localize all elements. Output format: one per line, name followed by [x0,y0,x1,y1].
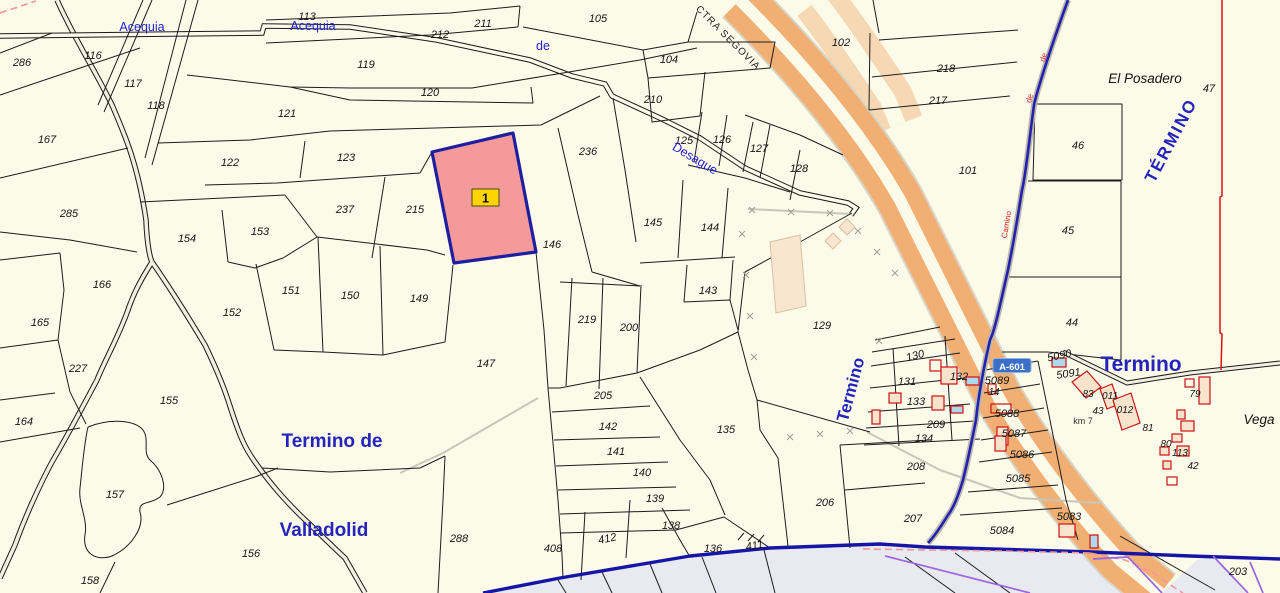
parcel-number-label: 5085 [1006,473,1031,485]
parcel-number-label: 146 [543,239,562,251]
municipality-label: Valladolid [280,520,369,541]
parcel-number-label: 127 [750,143,769,155]
parcel-number-label: 129 [813,320,831,332]
parcel-number-label: 46 [1072,140,1085,152]
parcel-number-label: 227 [68,363,88,375]
parcel-number-label: 236 [578,146,598,158]
parcel-number-label: 131 [898,376,916,388]
parcel-number-label: 208 [906,461,926,473]
parcel-number-label: 5086 [1010,449,1035,461]
road-shield-label: A-601 [999,362,1026,373]
parcel-number-label: 5088 [995,408,1020,420]
building [951,406,963,413]
parcel-number-label: 79 [1189,389,1201,400]
building [1059,524,1075,537]
building [1163,461,1171,469]
building [1090,535,1098,548]
municipality-label: Termino [1100,353,1181,376]
parcel-number-label: 102 [832,37,850,49]
parcel-number-label: 215 [405,204,425,216]
parcel-number-label: 126 [713,134,732,146]
building [932,396,944,410]
parcel-number-label: 212 [430,29,449,41]
parcel-number-label: 81 [1142,423,1153,434]
place-name-label: Vega [1243,412,1275,427]
parcel-number-label: 150 [341,290,360,302]
parcel-number-label: 219 [577,314,596,326]
building [1172,434,1182,442]
parcel-number-label: 166 [93,279,112,291]
building [889,393,901,403]
parcel-number-label: 123 [337,152,356,164]
parcel-number-label: 152 [223,307,241,319]
parcel-number-label: 157 [106,489,125,501]
hydro-label: Acequia [290,19,335,33]
parcel-number-label: 147 [477,358,496,370]
building [872,410,880,424]
parcel-number-label: 5084 [990,525,1014,537]
parcel-number-label: 132 [950,371,968,383]
parcel-number-label: 45 [1062,225,1075,237]
building [1177,410,1185,419]
parcel-number-label: 143 [699,285,718,297]
parcel-number-label: 203 [1228,566,1248,578]
building [1181,421,1194,431]
parcel-number-label: 205 [593,390,613,402]
parcel-number-label: 118 [147,100,165,112]
parcel-number-label: 167 [38,134,57,146]
parcel-number-label: 206 [815,497,835,509]
parcel-number-label: 105 [589,13,608,25]
parcel-number-label: 128 [790,163,809,175]
parcel-number-label: 288 [449,533,469,545]
parcel-number-label: 207 [903,513,923,525]
parcel-number-label: 154 [178,233,196,245]
parcel-number-label: 104 [660,54,678,66]
parcel-number-label: 133 [907,396,926,408]
cadastral-map[interactable]: 2141A-6012861161171181671132112121051042… [0,0,1280,593]
parcel-number-label: 116 [84,50,102,62]
parcel-number-label: 144 [701,222,719,234]
parcel-number-label: 119 [357,59,375,71]
parcel-number-label: 149 [410,293,428,305]
parcel-number-label: 156 [242,548,261,560]
parcel-number-label: 121 [278,108,296,120]
parcel-number-label: 140 [633,467,652,479]
parcel-number-label: 14 [988,387,1000,398]
parcel-number-label: 113 [1172,448,1188,459]
parcel-number-label: 42 [1187,461,1199,472]
parcel-number-label: 120 [421,87,440,99]
parcel-number-label: 5089 [985,375,1009,387]
parcel-number-label: 83 [1082,389,1094,400]
parcel-number-label: 80 [1160,439,1172,450]
parcel-number-label: 164 [15,416,33,428]
parcel-number-label: 151 [282,285,300,297]
parcel-number-label: 135 [717,424,736,436]
parcel-number-label: 210 [643,94,663,106]
km-marker-label: km 7 [1073,416,1093,426]
parcel-number-label: 209 [926,419,945,431]
parcel-number-label: 012 [1117,405,1134,416]
parcel-number-label: 138 [662,520,681,532]
parcel-number-label: 47 [1203,83,1216,95]
parcel-number-label: 286 [12,57,32,69]
parcel-number-label: 142 [599,421,617,433]
cadastral-map-viewport[interactable]: 2141A-6012861161171181671132112121051042… [0,0,1280,593]
parcel-number-label: 200 [619,322,639,334]
parcel-number-label: 122 [221,157,239,169]
building-zone [770,235,806,313]
parcel-number-label: 285 [59,208,79,220]
hydro-label: Acequia [119,20,164,34]
place-name-label: El Posadero [1108,71,1182,86]
parcel-number-label: 136 [704,543,723,555]
parcel-number-label: 145 [644,217,663,229]
building [1199,377,1210,404]
parcel-number-label: 141 [607,446,625,458]
parcel-number-label: 153 [251,226,270,238]
parcel-number-label: 5083 [1057,511,1082,523]
hydro-label: de [536,39,550,53]
parcel-number-label: 158 [81,575,100,587]
parcel-number-label: 101 [959,165,977,177]
parcel-number-label: 237 [335,204,355,216]
parcel-number-label: 408 [544,543,563,555]
parcel-number-label: 117 [124,78,142,90]
parcel-number-label: 44 [1066,317,1078,329]
parcel-number-label: 134 [915,433,933,445]
parcel-number-label: 139 [646,493,664,505]
parcel-number-label: 5087 [1002,428,1027,440]
parcel-badge-label: 1 [482,191,489,206]
parcel-number-label: 217 [928,95,948,107]
parcel-number-label: 211 [473,18,492,30]
municipality-label: Termino de [282,431,383,452]
parcel-number-label: 43 [1092,406,1104,417]
parcel-number-label: 011 [1102,391,1118,402]
parcel-number-label: 218 [936,63,956,75]
parcel-number-label: 165 [31,317,50,329]
parcel-number-label: 155 [160,395,179,407]
